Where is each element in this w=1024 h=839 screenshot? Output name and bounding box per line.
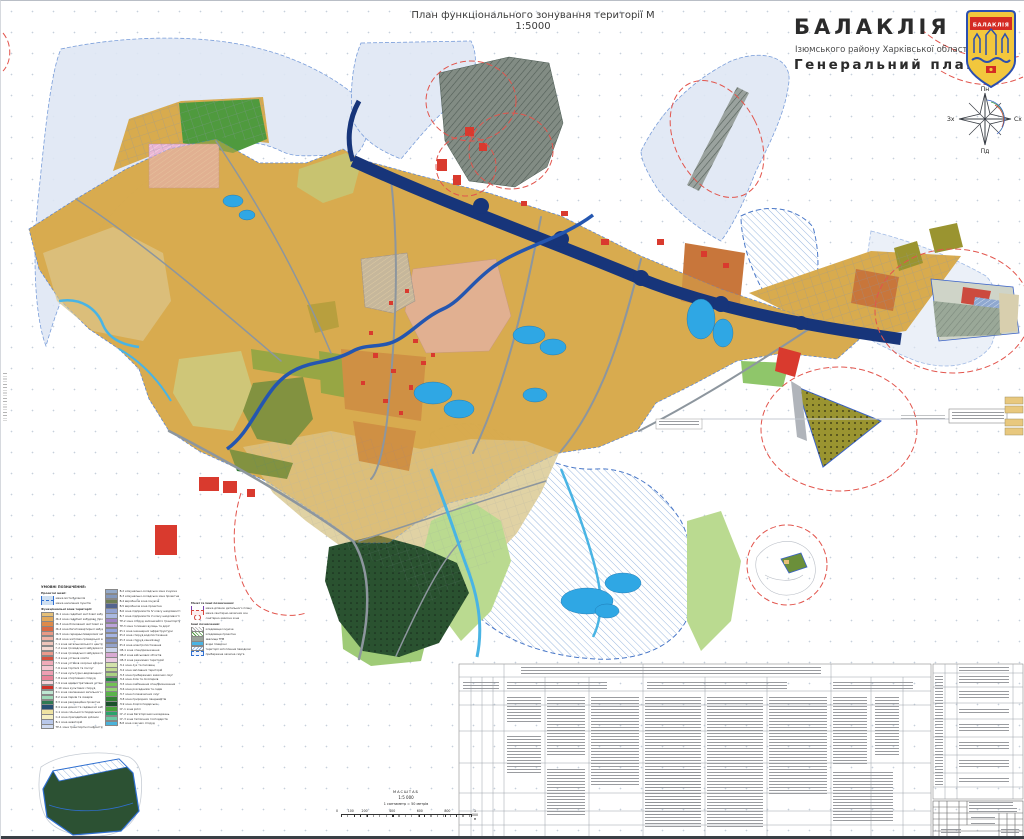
legend-zones-header: Функціональні зони території:	[41, 607, 103, 611]
legend-item-label: Л-2 зона заплавних територій	[120, 668, 163, 672]
legend-item-label: кладовище існуюче	[206, 627, 234, 631]
legend-item-label: Л-4 зона лісів та лісопарків	[120, 677, 159, 681]
scale-tick-label: 600	[417, 809, 423, 813]
detached-east-parcels	[931, 279, 1019, 341]
scale-ratio: 1:5 000	[337, 795, 475, 800]
inset-forest-parcel	[39, 753, 142, 836]
legend-item-label: ТР-1 зона транспортної інфраструктури	[56, 725, 103, 729]
legend-swatch	[41, 600, 54, 605]
legend-item-label: СГ-1 зона ріллі	[120, 707, 141, 711]
legend-item-label: С-1 зона сільськогосподарських угідь	[56, 710, 103, 714]
legend-item-label: Р-4 зона дачної та садівничої забудови	[56, 705, 103, 709]
legend-item-label: межа населених пунктів	[56, 601, 91, 605]
legend-item-label: Р-1 зона озеленення загального користува…	[56, 690, 103, 694]
zoning-parameters-table	[459, 664, 931, 837]
legend-item-label: межа міста Балаклія	[56, 596, 85, 600]
legend-item: В-8 зона очисних споруд	[105, 721, 189, 726]
compass-rose: Пн Пд Сх Зх	[947, 86, 1022, 155]
legend-item-label: Ж-3 зона блокованої житлової забудови	[56, 622, 103, 626]
legend-item-label: Л-7 зона полезахисних смуг	[120, 692, 160, 696]
legend-item-label: Р-2 зона парків та скверів	[56, 695, 93, 699]
legend-other-header: Межі та інші позначення:	[191, 601, 276, 605]
legend-item-label: Л-1 зона лук та пасовищ	[120, 663, 155, 667]
plan-title: Генеральний план	[794, 57, 978, 73]
legend-item: прибережна захисна смуга	[191, 651, 276, 656]
compass-south-label: Пд	[981, 148, 990, 155]
legend-item-label: В-2 комунально-складська зона існуюча	[120, 589, 177, 593]
legend-item-label: Г-8 зона спортивних споруд	[56, 676, 96, 680]
legend-column-1: УМОВНІ ПОЗНАЧЕННЯ: Проектні межі: межа м…	[41, 585, 103, 729]
city-subtitle: Ізюмського району Харківської області	[795, 45, 970, 55]
legend-item-label: Л-5 зона озеленення спецпризначення	[120, 682, 176, 686]
legend-item-label: Ж-1 зона садибної житлової забудови	[56, 612, 103, 616]
notes-table	[933, 664, 1023, 799]
legend-swatch	[105, 721, 118, 726]
scale-tick-label: 0	[336, 809, 338, 813]
legend-swatch	[191, 651, 204, 656]
legend-item-label: Г-3 зона громадської забудови проектна	[56, 651, 103, 655]
scale-tick-label: 1 000 м	[472, 809, 478, 821]
legend-item: санітарно-захисна зона	[191, 615, 276, 620]
legend-item-label: Г-10 зона культових споруд	[56, 686, 96, 690]
legend-item-label: ІН-1 зона інженерної інфраструктури	[120, 629, 173, 633]
coat-of-arms: БАЛАКЛІЯ	[965, 9, 1017, 89]
legend-item-label: В-3 комунально-складська зона проектна	[120, 594, 180, 598]
legend-item-label: ІН-2 зона споруд водопостачання	[120, 633, 168, 637]
legend-item-label: В-7 зона підприємств V класу шкідливості	[120, 614, 180, 618]
legend-item-label: Ж-6 зона житлово-громадської забудови	[56, 637, 103, 641]
legend-item-label: Л-3 зона прибережних захисних смуг	[120, 673, 173, 677]
landfill-parcel	[791, 381, 881, 467]
legend-title: УМОВНІ ПОЗНАЧЕННЯ:	[41, 585, 103, 589]
scale-tick-label: 100	[348, 809, 354, 813]
legend-item-label: прибережна захисна смуга	[206, 652, 245, 656]
legend-item-label: Р-3 зона рекреаційна проектна	[56, 700, 100, 704]
title-stamp	[933, 801, 1023, 837]
legend-item: ТР-1 зона транспортної інфраструктури	[41, 724, 103, 729]
genplan-sheet: Пн Пд Сх Зх План функціонального зонуван…	[0, 0, 1024, 839]
legend-item-label: СГ-3 зона тепличних господарств	[120, 717, 168, 721]
scale-bar: МАСШТАБ 1:5 000 1 сантиметр = 50 метрів …	[337, 790, 475, 821]
legend-column-2: В-2 комунально-складська зона існуючаВ-3…	[105, 589, 189, 726]
crest-label: БАЛАКЛІЯ	[973, 23, 1010, 29]
legend-item-label: С-2 зона присадибних ділянок	[56, 715, 99, 719]
legend-item: межа населених пунктів	[41, 600, 103, 605]
legend-item-label: ІН-3 зона споруд каналізації	[120, 638, 160, 642]
legend-item-label: Л-8 зона природних ландшафтів	[120, 697, 167, 701]
scale-ruler: 01002004006008001 000 м	[337, 809, 475, 821]
legend-item-label: СГ-2 зона багаторічних насаджень	[120, 712, 170, 716]
legend-item-label: В-5 виробнича зона проектна	[120, 604, 162, 608]
legend-column-3: Межі та інші позначення: межа ділянок де…	[191, 599, 276, 656]
scale-tick-label: 800	[444, 809, 450, 813]
legend-item-label: В-1 зона акваторій	[56, 720, 83, 724]
legend-item-label: В-6 зона підприємств IV класу шкідливост…	[120, 609, 181, 613]
legend-item-label: Г-5 зона установ охорони здоров'я	[56, 661, 103, 665]
legend-swatch	[194, 615, 201, 620]
legend-item-label: Ж-5 зона середньоповерхової забудови	[56, 632, 103, 636]
scale-ruler-labels: 01002004006008001 000 м	[337, 809, 475, 813]
legend-item-label: Ж-4 зона багатоквартирної забудови	[56, 627, 103, 631]
legend-item-label: кладовище проектне	[206, 632, 236, 636]
legend-item-label: Г-6 зона торгівлі та послуг	[56, 666, 94, 670]
legend-item-label: території затоплення паводком	[206, 647, 251, 651]
compass-east-label: Сх	[1014, 116, 1022, 123]
legend-item-label: В-4 виробнича зона існуюча	[120, 599, 160, 603]
legend-item-label: Г-9 зона адміністративних установ	[56, 681, 103, 685]
legend-item-label: СВ-3 зона режимних територій	[120, 658, 164, 662]
legend-item-label: Г-7 зона культурно-видовищних установ	[56, 671, 103, 675]
legend-item-label: СВ-1 зона спецпризначення	[120, 648, 160, 652]
legend-item-label: ТР-2 зона споруд залізничного транспорту	[120, 619, 181, 623]
legend-item-label: межа ділянок детального плану	[206, 606, 252, 610]
scale-note: 1 сантиметр = 50 метрів	[337, 802, 475, 806]
legend: УМОВНІ ПОЗНАЧЕННЯ: Проектні межі: межа м…	[41, 585, 276, 740]
legend-boundaries-header: Проектні межі:	[41, 591, 103, 595]
legend-swatch	[41, 724, 54, 729]
city-title: БАЛАКЛІЯ	[794, 15, 951, 39]
legend-item-label: ТР-3 зона головних вулиць та доріг	[120, 624, 170, 628]
legend-item-label: водні поверхні	[206, 642, 227, 646]
legend-item-label: Г-1 зона загальноміського центру	[56, 642, 103, 646]
scale-tick-label: 400	[389, 809, 395, 813]
legend-item-label: Ж-2 зона садибної забудови (проектна)	[56, 617, 103, 621]
legend-item-label: ІН-4 зона електропостачання	[120, 643, 162, 647]
legend-item-label: Г-4 зона установ освіти	[56, 656, 89, 660]
legend-item-label: Л-9 зона лісогосподарська	[120, 702, 158, 706]
legend-item-label: Л-6 зона розсадників та садів	[120, 687, 162, 691]
legend-item-label: СВ-2 зона військових об'єктів	[120, 653, 162, 657]
legend-item-label: звалище ТПВ	[206, 637, 225, 641]
legend-item-label: санітарно-захисна зона	[206, 616, 240, 620]
compass-west-label: Зх	[947, 116, 955, 123]
legend-item-label: межа санітарно-захисних зон	[206, 611, 248, 615]
scale-title: МАСШТАБ	[337, 790, 475, 794]
margin-note	[3, 373, 7, 421]
scale-ruler-bar	[341, 814, 471, 819]
legend-other-subheader: Інші позначення:	[191, 622, 276, 626]
legend-item-label: Г-2 зона громадської забудови існуюча	[56, 646, 103, 650]
detached-village	[756, 541, 816, 595]
map-title: План функціонального зонування території…	[393, 10, 673, 32]
legend-item-label: В-8 зона очисних споруд	[120, 721, 155, 725]
scale-tick-label: 200	[362, 809, 368, 813]
